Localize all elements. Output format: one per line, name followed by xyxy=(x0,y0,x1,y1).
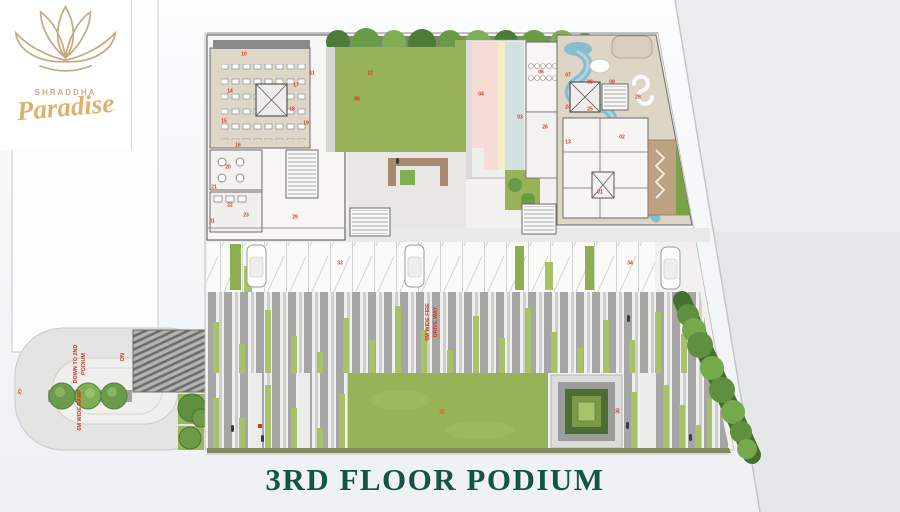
deck-sofa xyxy=(590,59,610,73)
tower-b-rooms xyxy=(563,118,648,218)
ramp-down-label: DOWN TO 2ND PODIUM xyxy=(72,344,89,383)
floor-plan-drawing xyxy=(0,0,900,512)
room-number-label: 01 xyxy=(597,191,603,196)
room-number-label: 12 xyxy=(367,72,373,77)
room-number-label: 06 xyxy=(538,71,544,76)
car xyxy=(247,245,266,287)
room-number-label: 11 xyxy=(309,72,314,77)
room-number-label: 03 xyxy=(517,116,523,121)
room-number-label: 29 xyxy=(292,216,298,221)
room-number-label: 20 xyxy=(225,166,231,171)
room-number-label: 18 xyxy=(289,108,295,113)
louver-deck-lower-left xyxy=(207,373,348,450)
room-number-label: 07 xyxy=(565,74,571,79)
stair-c xyxy=(350,208,390,236)
car xyxy=(661,247,680,289)
room-number-label: 22 xyxy=(227,204,233,209)
logo-card: SHRADDHA Paradise xyxy=(0,0,132,150)
lawn-path xyxy=(326,47,335,152)
median-trees xyxy=(48,383,132,409)
roadside-tree xyxy=(179,427,201,449)
room-number-label: 31 xyxy=(209,220,215,225)
room-number-label: 09 xyxy=(609,81,615,86)
stair-a xyxy=(286,150,318,198)
washrooms xyxy=(210,192,262,232)
room-number-label: 17 xyxy=(293,84,299,89)
room-number-label: 24 xyxy=(565,106,571,111)
stair-d xyxy=(522,204,556,234)
lawn-number-label: 32 xyxy=(439,411,445,416)
room-number-label: 16 xyxy=(235,144,241,149)
plaza-planter xyxy=(400,170,415,185)
room-number-label: 26 xyxy=(542,126,548,131)
room-number-label: 21 xyxy=(211,186,217,191)
room-number-label: 23 xyxy=(243,214,249,219)
room-number-label: 02 xyxy=(619,136,625,141)
dn-label: DN xyxy=(119,353,127,361)
lotus-logo-icon xyxy=(0,0,131,88)
room-number-label: 34 xyxy=(627,262,633,267)
spa-deck xyxy=(612,36,652,58)
podium-shadow xyxy=(207,453,729,455)
room-number-label: 04 xyxy=(478,93,484,98)
maze-garden xyxy=(551,375,622,448)
louver-deck xyxy=(207,292,713,373)
room-number-label: 05 xyxy=(354,98,360,103)
bottom-hedge xyxy=(207,448,731,453)
room-number-label: 08 xyxy=(587,81,593,86)
great-lawn xyxy=(348,373,548,450)
room-number-label: 25 xyxy=(587,108,593,113)
ramp-width-label: 6M WIDE RAMP xyxy=(76,389,84,430)
ramp-hatch xyxy=(133,330,207,392)
red-marker xyxy=(258,424,262,428)
tower-a-block xyxy=(207,35,345,240)
room-number-label: 19 xyxy=(303,122,309,127)
floor-plan-page: SHRADDHA Paradise DOWN TO 2ND PODIUM 6M … xyxy=(0,0,900,512)
room-number-label: 15 xyxy=(221,120,227,125)
driveway-label: 6M WIDE FIRE DRIVE WAY xyxy=(424,303,441,341)
site-road xyxy=(15,328,215,450)
room-number-label: 13 xyxy=(565,141,571,146)
elevator-core-a xyxy=(256,84,287,116)
seating-room xyxy=(526,42,560,178)
room-number-label: 28 xyxy=(635,96,641,101)
elevator-core-b xyxy=(570,82,600,112)
stair-b xyxy=(602,84,628,110)
room-number-label: 10 xyxy=(241,53,247,58)
room-number-label: 33 xyxy=(337,262,343,267)
maze-number-label: 30 xyxy=(617,408,622,414)
car xyxy=(405,245,424,287)
lounge-room xyxy=(210,150,262,190)
room-number-label: 14 xyxy=(227,90,233,95)
page-title: 3RD FLOOR PODIUM xyxy=(85,462,785,498)
